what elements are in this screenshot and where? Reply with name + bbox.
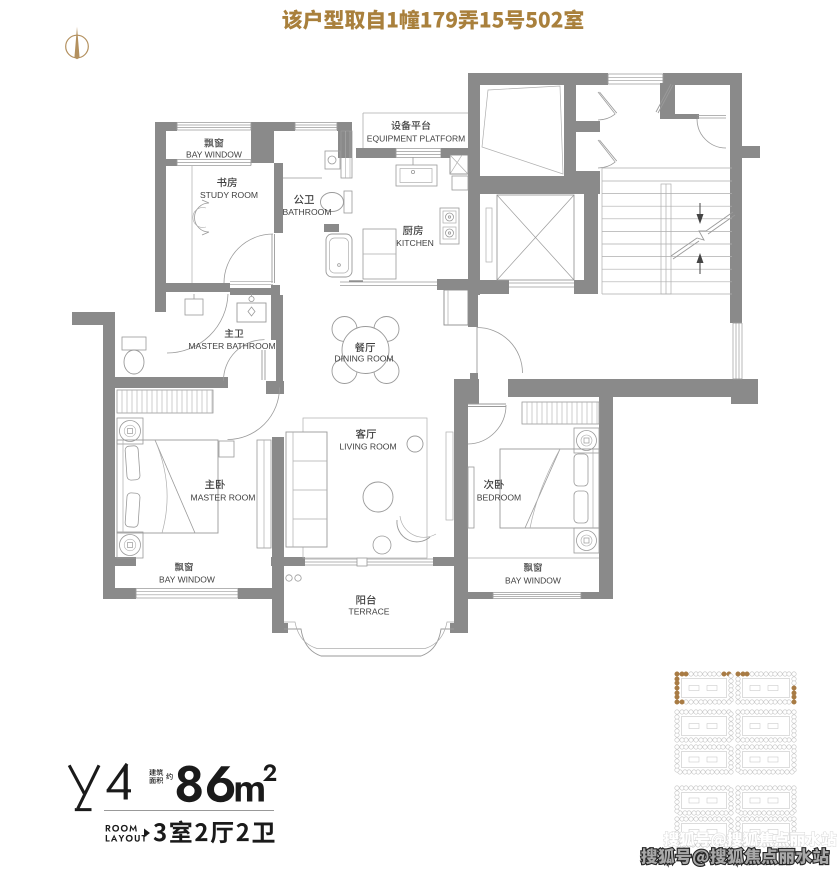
svg-text:EQUIPMENT PLATFORM: EQUIPMENT PLATFORM	[367, 134, 465, 144]
svg-text:BAY WINDOW: BAY WINDOW	[159, 575, 215, 585]
svg-text:BATHROOM: BATHROOM	[282, 207, 331, 217]
svg-text:DINING ROOM: DINING ROOM	[334, 354, 393, 364]
svg-text:TERRACE: TERRACE	[348, 607, 389, 617]
svg-text:MASTER BATHROOM: MASTER BATHROOM	[188, 341, 275, 351]
svg-text:BEDROOM: BEDROOM	[477, 493, 521, 503]
svg-text:BAY WINDOW: BAY WINDOW	[186, 150, 242, 160]
svg-text:LIVING ROOM: LIVING ROOM	[339, 441, 396, 451]
svg-text:KITCHEN: KITCHEN	[396, 238, 434, 248]
svg-text:STUDY ROOM: STUDY ROOM	[200, 190, 258, 200]
svg-text:MASTER ROOM: MASTER ROOM	[191, 493, 256, 503]
svg-text:BAY WINDOW: BAY WINDOW	[505, 576, 561, 586]
